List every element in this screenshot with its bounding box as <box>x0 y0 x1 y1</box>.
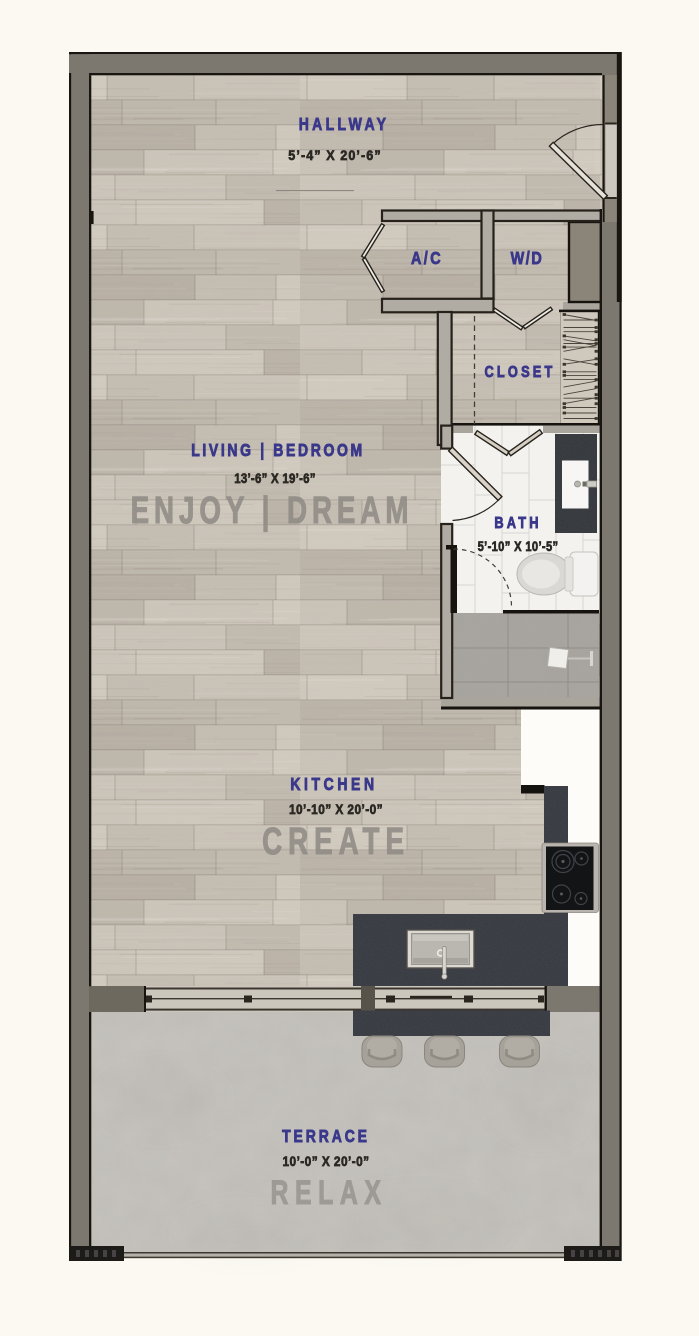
svg-text:ENJOY | DREAM: ENJOY | DREAM <box>131 490 414 532</box>
svg-text:W/D: W/D <box>511 249 544 269</box>
svg-text:TERRACE: TERRACE <box>282 1128 370 1147</box>
svg-text:LIVING | BEDROOM: LIVING | BEDROOM <box>191 442 365 461</box>
svg-text:CREATE: CREATE <box>262 821 410 863</box>
svg-text:KITCHEN: KITCHEN <box>290 776 377 795</box>
svg-text:10’-10” X 20’-0”: 10’-10” X 20’-0” <box>289 801 383 817</box>
svg-text:BATH: BATH <box>494 515 541 533</box>
svg-text:CLOSET: CLOSET <box>484 364 555 382</box>
svg-text:13’-6” X 19’-6”: 13’-6” X 19’-6” <box>234 470 316 486</box>
svg-text:HALLWAY: HALLWAY <box>299 116 390 135</box>
svg-text:5’-4” X 20’-6”: 5’-4” X 20’-6” <box>288 147 381 163</box>
svg-text:RELAX: RELAX <box>271 1174 388 1212</box>
svg-text:10’-0” X 20’-0”: 10’-0” X 20’-0” <box>282 1153 369 1169</box>
svg-text:5’-10” X 10’-5”: 5’-10” X 10’-5” <box>478 539 559 554</box>
svg-text:A/C: A/C <box>411 249 443 269</box>
